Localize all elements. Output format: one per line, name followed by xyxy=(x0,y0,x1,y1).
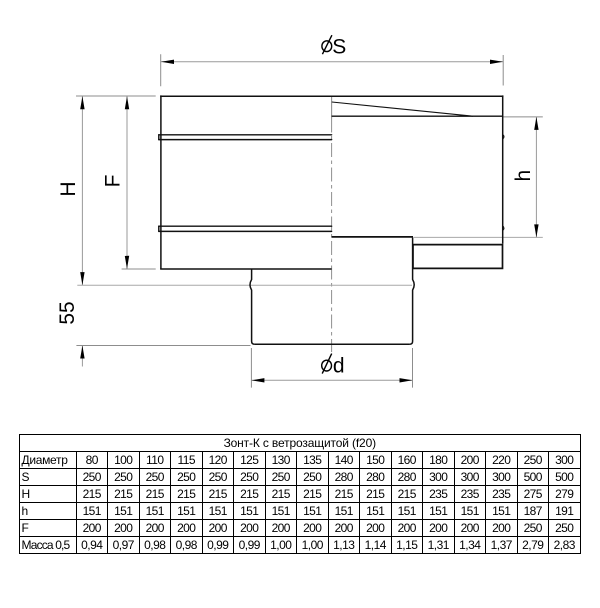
svg-text:55: 55 xyxy=(56,301,79,324)
svg-text:F: F xyxy=(102,175,125,188)
svg-text:H: H xyxy=(57,181,80,196)
svg-text:S: S xyxy=(332,36,346,59)
svg-text:d: d xyxy=(333,355,345,378)
svg-text:h: h xyxy=(512,170,535,182)
